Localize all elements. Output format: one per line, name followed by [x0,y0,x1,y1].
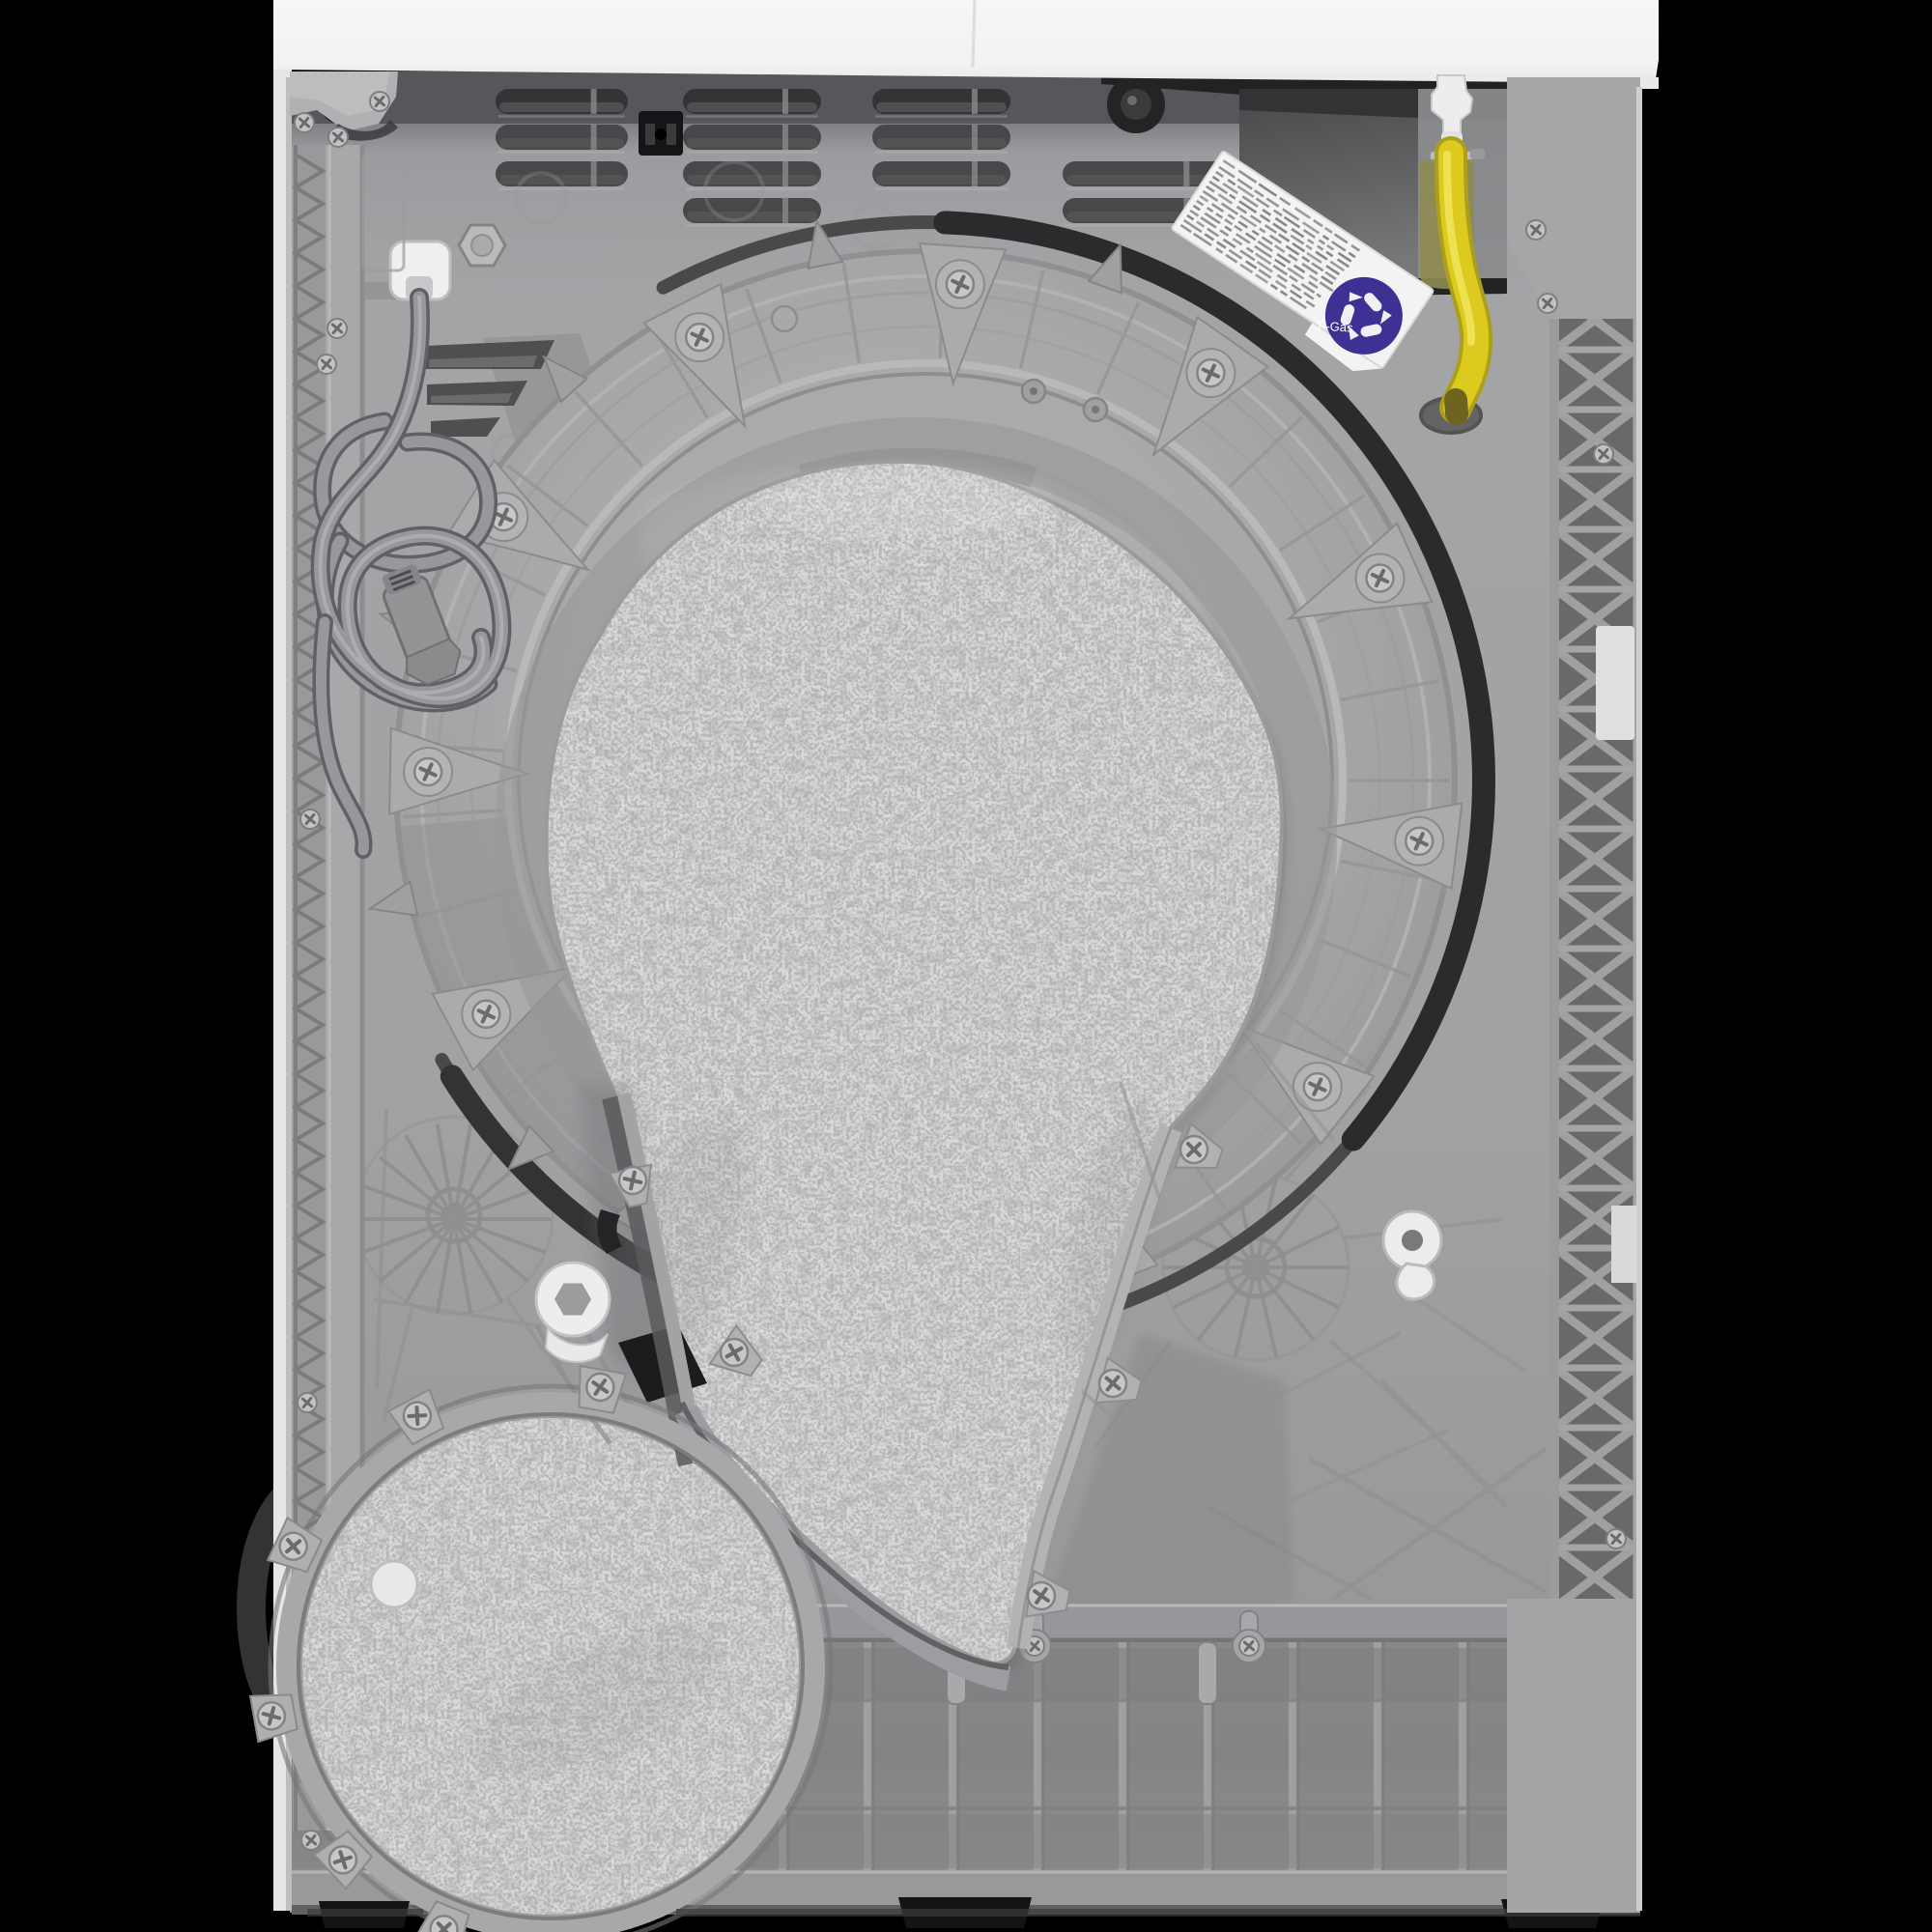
svg-text:F-Gas: F-Gas [1318,319,1353,335]
